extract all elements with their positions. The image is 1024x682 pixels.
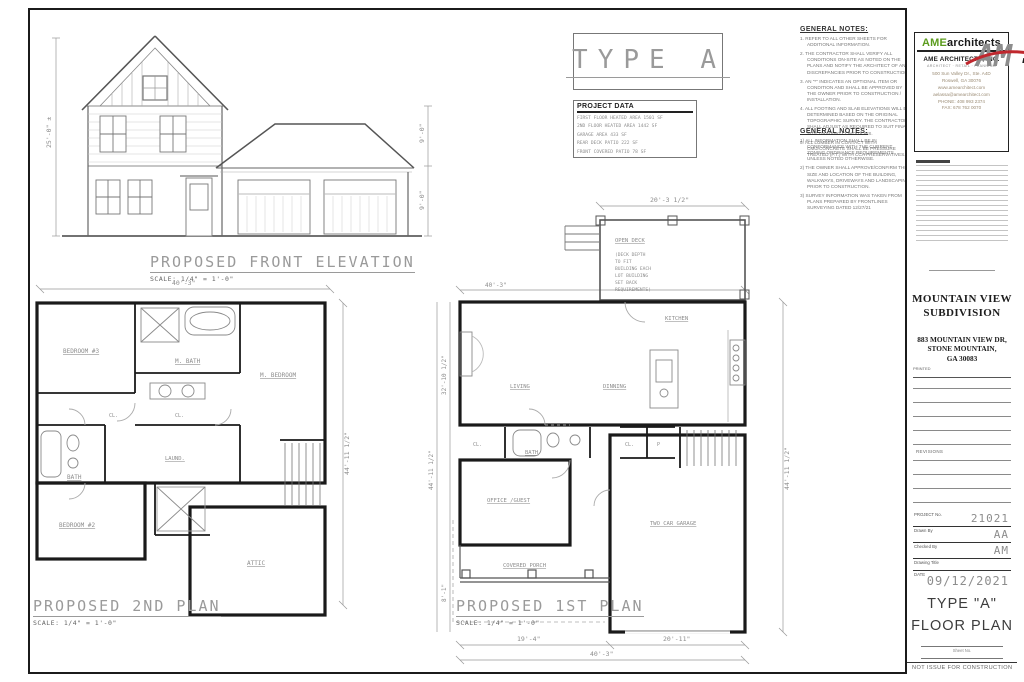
plan2-room-bath: BATH <box>67 474 82 481</box>
plan2-room-attic: ATTIC <box>247 560 265 567</box>
firm-email: aelassa@amearchitect.com <box>917 92 1006 99</box>
firm-contact: 500 Sun Valley Dr., Ste. A4D Roswell, GA… <box>917 71 1006 112</box>
plan2-dim-top: 40'-3" <box>172 279 195 287</box>
plan1-deck-note: (DECK DEPTH <box>615 252 646 258</box>
plan1-room-cl2: CL. <box>625 442 634 448</box>
project-number-label: PROJECT No. <box>914 512 942 517</box>
plan1-title: PROPOSED 1ST PLAN <box>456 597 644 617</box>
front-elevation-drawing: 25'-0" ± 9'-0" 9'-0" <box>40 18 440 253</box>
plan1-deck-note: REQUIREMENTS) <box>615 287 651 293</box>
plan1-deck-note: BUILDING EACH <box>615 266 651 272</box>
copyright-fine-print <box>916 160 1008 243</box>
elevation-linework <box>52 36 432 236</box>
revision-rule <box>913 444 1011 445</box>
drawn-by-value: AA <box>994 528 1009 541</box>
plan1-room-dinning: DINNING <box>603 384 626 390</box>
drawn-by-label: Drawn By <box>914 528 933 533</box>
plan1-dim-deck: 20'-3 1/2" <box>650 196 689 204</box>
subdivision-name-line2: SUBDIVISION <box>911 307 1013 321</box>
plan1-dim-body-top: 40'-3" <box>485 282 507 289</box>
type-a-label-box: TYPE A <box>573 33 723 90</box>
revision-rule <box>913 430 1011 431</box>
firm-logo-block: AM AMEarchitects AME ARCHITECTS, INC. AR… <box>914 32 1009 152</box>
plan1-room-garage: TWO CAR GARAGE <box>650 521 696 527</box>
plan1-scale: SCALE: 1/4" = 1'-0" <box>456 619 644 627</box>
ame-logo-icon: AM <box>962 36 1024 76</box>
sheet-title: TYPE "A" FLOOR PLAN <box>907 593 1017 638</box>
plan1-dim-bottom-left: 19'-4" <box>517 635 540 643</box>
plan1-walls <box>460 216 749 632</box>
elevation-title: PROPOSED FRONT ELEVATION <box>150 253 415 273</box>
plan1-room-office: OFFICE /GUEST <box>487 498 531 504</box>
revision-rule <box>913 388 1011 389</box>
plan2-dim-right: 44'-11 1/2" <box>343 432 351 475</box>
elevation-dim-left: 25'-0" ± <box>45 117 53 148</box>
project-number-value: 21021 <box>971 512 1009 525</box>
plan1-room-kitchen: KITCHEN <box>665 316 688 322</box>
note-item: 3. AN "*" INDICATES AN OPTIONAL ITEM OR … <box>800 79 910 103</box>
revision-rule <box>913 488 1011 489</box>
project-data-line: GARAGE AREA 433 SF <box>577 132 693 140</box>
plan2-room-bedroom2: BEDROOM #2 <box>59 522 96 529</box>
revision-rule <box>913 416 1011 417</box>
date-label: DATE <box>914 572 925 577</box>
first-floor-plan-drawing: 20'-3 1/2" 40'-3" 44'-11 1/2" 32'-10 1/2… <box>425 190 795 665</box>
plan1-dim-right: 44'-11 1/2" <box>783 447 791 490</box>
revision-rule <box>913 502 1011 503</box>
sheet-title-line2: FLOOR PLAN <box>907 615 1017 637</box>
plan1-room-porch: COVERED PORCH <box>503 563 546 569</box>
revision-rule <box>913 474 1011 475</box>
project-number-row: PROJECT No. 21021 <box>913 511 1011 527</box>
drawing-title-label: Drawing Title <box>914 560 939 565</box>
plan1-dim-left-lower: 8'-1" <box>441 584 448 602</box>
title-block-panel: AM AMEarchitects AME ARCHITECTS, INC. AR… <box>905 8 1015 674</box>
plan1-deck-note: SET BACK <box>615 280 637 286</box>
plan1-deck-note: LOT BUILDING <box>615 273 648 279</box>
plan1-dim-left-outer: 44'-11 1/2" <box>428 450 435 490</box>
plan1-room-bath: BATH <box>525 450 538 456</box>
plan1-dims <box>437 202 787 664</box>
subdivision-address1: 883 MOUNTAIN VIEW DR, <box>911 335 1013 345</box>
printed-label: PRINTED <box>913 366 931 371</box>
elevation-dim-right-upper: 9'-0" <box>418 123 426 143</box>
sheet-title-line1: TYPE "A" <box>907 593 1017 615</box>
revisions-label: REVISIONS <box>916 449 943 454</box>
plan1-deck-note: TO FIT <box>615 259 632 265</box>
plan2-room-mbath: M. BATH <box>175 358 201 365</box>
second-floor-plan-drawing: 40'-3" 44'-11 1/2" <box>25 275 355 625</box>
subdivision-name-line1: MOUNTAIN VIEW <box>911 293 1013 307</box>
plan2-room-cl1: CL. <box>109 413 118 419</box>
logo-ame-text: AME <box>922 37 947 49</box>
plan1-dim-left-upper: 32'-10 1/2" <box>441 355 448 395</box>
plan1-caption: PROPOSED 1ST PLAN SCALE: 1/4" = 1'-0" <box>456 597 644 627</box>
drawn-by-row: Drawn By AA <box>913 527 1011 543</box>
printed-row: PRINTED <box>913 366 1011 378</box>
general-notes-mid-title: GENERAL NOTES: <box>800 128 910 135</box>
firm-phone: PHONE: 408 993 2374 <box>917 99 1006 106</box>
plan2-room-bedroom3: BEDROOM #3 <box>63 348 100 355</box>
plan2-room-cl2: CL. <box>175 413 184 419</box>
project-data-line: FIRST FLOOR HEATED AREA 1501 SF <box>577 115 693 123</box>
revision-rule <box>913 460 1011 461</box>
firm-website: www.amearchitect.com <box>917 85 1006 92</box>
firm-fax: FAX: 678 762 0070 <box>917 105 1006 112</box>
subdivision-block: MOUNTAIN VIEW SUBDIVISION 883 MOUNTAIN V… <box>911 293 1013 364</box>
date-row: DATE 09/12/2021 <box>913 571 1011 589</box>
note-item: 1. REFER TO ALL OTHER SHEETS FOR ADDITIO… <box>800 36 910 48</box>
fine-print-lines <box>916 165 1008 243</box>
drawing-sheet: 25'-0" ± 9'-0" 9'-0" PROPOSED FRONT ELEV… <box>0 0 1024 682</box>
project-data-line: FRONT COVERED PATIO 78 SF <box>577 149 693 157</box>
checked-by-value: AM <box>994 544 1009 557</box>
date-value: 09/12/2021 <box>927 574 1009 588</box>
sheet-number-row: Sheet No. <box>921 646 1003 659</box>
firm-address2: Roswell, GA 30076 <box>917 78 1006 85</box>
not-for-construction-note: NOT ISSUE FOR CONSTRUCTION <box>907 662 1017 671</box>
checked-by-row: Checked By AM <box>913 543 1011 559</box>
sheet-number-label: Sheet No. <box>953 648 972 653</box>
subdivision-address3: GA 30083 <box>911 354 1013 364</box>
project-data-line: REAR DECK PATIO 222 SF <box>577 140 693 148</box>
project-data-line: 2ND FLOOR HEATED AREA 1442 SF <box>577 123 693 131</box>
plan1-room-cl1: CL. <box>473 442 482 448</box>
note-item: 2. THE CONTRACTOR SHALL VERIFY ALL CONDI… <box>800 51 910 75</box>
plan2-scale: SCALE: 1/4" = 1'-0" <box>33 619 221 627</box>
checked-by-label: Checked By <box>914 544 937 549</box>
project-data-box: PROJECT DATA FIRST FLOOR HEATED AREA 150… <box>573 100 697 158</box>
note-item: 1) ALL INFORMATION SHALL BE IN CONFORMAN… <box>800 138 910 162</box>
plan1-room-pantry: P <box>657 442 660 448</box>
plan1-dim-bottom-right: 20'-11" <box>663 635 690 643</box>
plan2-room-laund: LAUND. <box>165 456 185 462</box>
type-a-label: TYPE A <box>566 45 730 78</box>
subdivision-address2: STONE MOUNTAIN, <box>911 344 1013 354</box>
fine-print-heading-bar <box>916 160 950 163</box>
project-data-title: PROJECT DATA <box>577 103 693 113</box>
plan2-fixtures <box>41 307 320 531</box>
revision-rule <box>913 402 1011 403</box>
note-item: 2) THE OWNER SHALL APPROVE/CONFIRM THE S… <box>800 165 910 189</box>
plan1-room-open-deck: OPEN DECK <box>615 238 645 244</box>
drawing-title-row: Drawing Title <box>913 559 1011 571</box>
plan2-title: PROPOSED 2ND PLAN <box>33 597 221 617</box>
note-item: 3) SURVEY INFORMATION WAS TAKEN FROM PLA… <box>800 193 910 211</box>
plan1-room-living: LIVING <box>510 384 530 390</box>
general-notes-mid: GENERAL NOTES: 1) ALL INFORMATION SHALL … <box>800 128 910 214</box>
plan1-dim-bottom-total: 40'-3" <box>590 650 613 658</box>
general-notes-top-title: GENERAL NOTES: <box>800 26 910 33</box>
panel-divider-line <box>929 270 995 271</box>
plan2-caption: PROPOSED 2ND PLAN SCALE: 1/4" = 1'-0" <box>33 597 221 627</box>
plan2-room-mbedroom: M. BEDROOM <box>260 372 297 379</box>
